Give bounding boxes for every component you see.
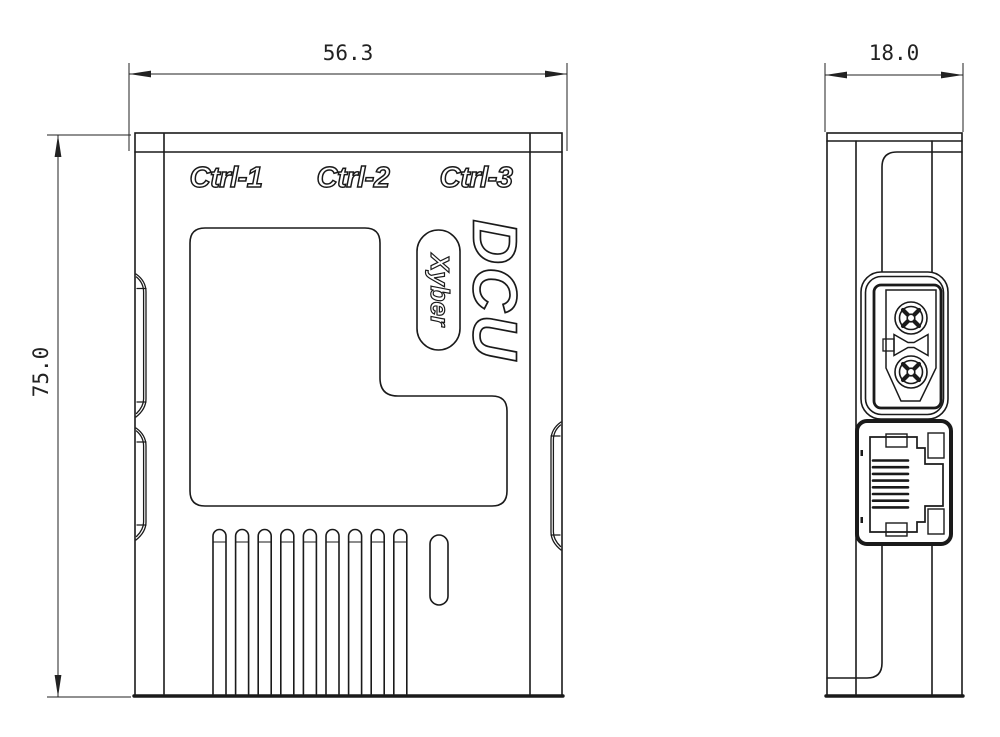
rj45-ethernet-port (857, 421, 951, 544)
side-clip-left-lower (136, 428, 146, 540)
side-view (826, 133, 963, 696)
extension-lines (129, 63, 567, 151)
rj45-index-dot-bottom (861, 517, 864, 523)
dcu-logo-text: DCU (460, 219, 529, 362)
extension-lines (47, 135, 131, 697)
depth-dim-label: 18.0 (869, 41, 920, 65)
dim-arrow-left (825, 72, 847, 79)
dcu-enclosure-drawing: Ctrl-1 Ctrl-2 Ctrl-3 Xyber DCU (0, 0, 1000, 737)
dimension-height: 75.0 (29, 135, 131, 697)
xt30-socket-bottom (895, 356, 927, 388)
side-clip-left-upper (136, 274, 146, 417)
port-label-ctrl-1: Ctrl-1 (190, 162, 263, 194)
width-dim-label: 56.3 (323, 41, 374, 65)
front-view: Ctrl-1 Ctrl-2 Ctrl-3 Xyber DCU (134, 133, 563, 696)
dimension-width: 56.3 (129, 41, 567, 151)
dim-arrow-top (55, 135, 62, 157)
status-slot (430, 535, 448, 605)
side-clip-right (551, 422, 561, 550)
xyber-badge-text: Xyber (425, 252, 455, 328)
port-label-ctrl-2: Ctrl-2 (317, 162, 390, 194)
vent-slots (213, 530, 407, 695)
xt30-socket-top (895, 302, 927, 334)
xt30-power-connector (861, 272, 948, 419)
height-dim-label: 75.0 (29, 347, 53, 398)
technical-drawing-sheet: Ctrl-1 Ctrl-2 Ctrl-3 Xyber DCU (0, 0, 1000, 737)
dim-arrow-bottom (55, 675, 62, 697)
port-label-ctrl-3: Ctrl-3 (440, 162, 513, 194)
dim-arrow-left (129, 71, 151, 78)
dim-arrow-right (941, 72, 963, 79)
dim-arrow-right (545, 71, 567, 78)
dimension-depth: 18.0 (825, 41, 963, 132)
rj45-index-dot-top (861, 450, 864, 456)
